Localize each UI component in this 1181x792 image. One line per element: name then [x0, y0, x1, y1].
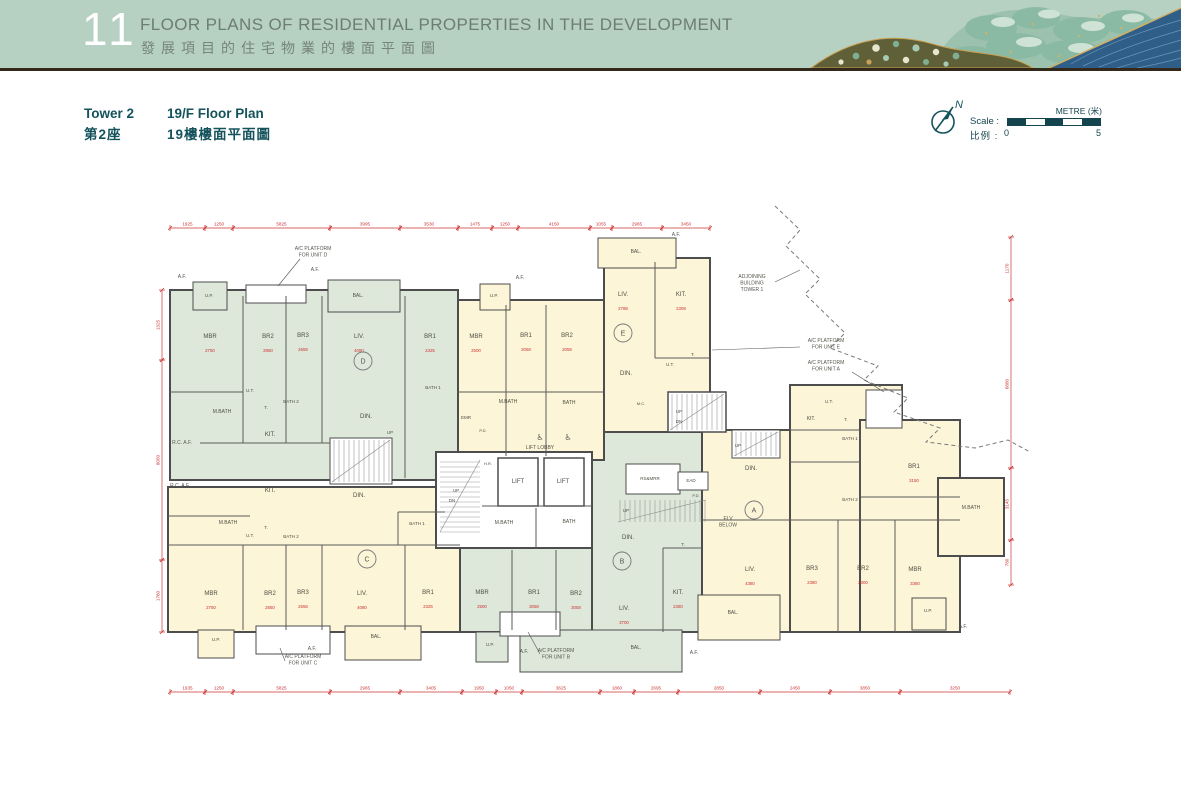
- room-label: BATH 2: [283, 399, 299, 404]
- room-label: MBR: [469, 334, 483, 340]
- room-label: BATH 2: [283, 534, 299, 539]
- annotation-label: ♿: [536, 433, 543, 442]
- annotation-label: A.F.: [672, 232, 681, 238]
- room-label: BATH 2: [842, 497, 858, 502]
- plan-zone: [246, 285, 306, 303]
- dimension-label: 1925: [182, 222, 193, 227]
- room-dimension: 3700: [619, 620, 629, 625]
- annotation-label: A/C PLATFORMFOR UNIT A: [808, 360, 845, 373]
- dimension-label: 3850: [860, 686, 871, 691]
- dimension-label: 1170: [1005, 263, 1010, 273]
- room-label: KIT.: [265, 488, 276, 494]
- dimension-label: 6880: [1005, 378, 1010, 389]
- annotation-label: A.F.: [308, 646, 317, 652]
- dimension-label: 1935: [182, 686, 193, 691]
- annotation-leader: [278, 259, 300, 286]
- dimension-label: 1050: [504, 686, 515, 691]
- room-label: MBR: [203, 334, 217, 340]
- room-label: BR1: [520, 333, 532, 339]
- room-label: T.: [681, 542, 685, 547]
- annotation-leader: [775, 270, 800, 282]
- dimension-label: 5825: [276, 222, 287, 227]
- annotation-label: ADJOININGBUILDINGTOWER 1: [738, 274, 765, 293]
- dimension-label: 2450: [790, 686, 801, 691]
- room-dimension: 2850: [265, 605, 275, 610]
- plan-zone: [938, 478, 1004, 556]
- annotation-label: A.F.: [311, 267, 320, 273]
- room-label: DIN.: [620, 371, 632, 377]
- room-dimension: 2750: [206, 605, 216, 610]
- room-label: BAL.: [371, 634, 382, 640]
- room-label: U.P.: [212, 637, 220, 642]
- unit-letter: D: [360, 359, 365, 366]
- room-label: T.: [844, 417, 848, 422]
- annotation-label: ♿: [564, 433, 571, 442]
- dimension-label: 3995: [360, 222, 371, 227]
- room-dimension: 2380: [673, 604, 683, 609]
- room-label: LIV.: [357, 591, 367, 597]
- room-label: BAL.: [728, 610, 739, 616]
- room-label: BR3: [297, 590, 309, 596]
- annotation-leader: [712, 347, 800, 350]
- room-label: BR2: [262, 334, 274, 340]
- room-dimension: 2058: [521, 347, 531, 352]
- room-label: M.BATH: [499, 399, 518, 405]
- room-label: BATH: [563, 400, 576, 406]
- dimension-label: 1250: [214, 686, 225, 691]
- room-label: KIT.: [265, 432, 276, 438]
- unit-letter: B: [620, 559, 625, 566]
- room-label: M.C.: [637, 401, 645, 406]
- dimension-label: 1055: [596, 222, 607, 227]
- room-dimension: 2380: [807, 580, 817, 585]
- dimension-label: 2695: [651, 686, 662, 691]
- room-dimension: 2750: [205, 348, 215, 353]
- annotation-label: A.F.: [516, 275, 525, 281]
- room-label: LIFT: [512, 479, 525, 485]
- dimension-label: 8050: [156, 454, 161, 465]
- room-label: T.: [264, 405, 268, 410]
- room-label: UP: [453, 488, 459, 493]
- room-dimension: 2500: [477, 604, 487, 609]
- room-label: LIV.: [619, 606, 629, 612]
- room-dimension: 2300: [858, 580, 868, 585]
- room-label: T.: [264, 525, 268, 530]
- dimension-label: 1475: [470, 222, 481, 227]
- annotation-label: R.C. A.F.: [170, 483, 190, 489]
- dimension-label: 4150: [549, 222, 560, 227]
- annotation-label: R.C. A.F.: [172, 440, 192, 446]
- plan-zone: [345, 626, 421, 660]
- plan-zone: [458, 300, 604, 460]
- room-dimension: 2325: [423, 604, 433, 609]
- dimension-label: 1760: [156, 590, 161, 601]
- room-label: LIV.: [745, 567, 755, 573]
- room-dimension: 4380: [745, 581, 755, 586]
- room-label: UP: [735, 443, 741, 448]
- room-label: DIN.: [622, 535, 634, 541]
- room-label: MBR: [475, 590, 489, 596]
- annotation-label: A.F.: [520, 649, 529, 655]
- room-label: P.D.: [692, 493, 699, 498]
- room-dimension: 2788: [618, 306, 628, 311]
- room-label: BAL.: [631, 645, 642, 651]
- room-label: LIV.: [354, 334, 364, 340]
- unit-letter: C: [364, 557, 369, 564]
- room-label: M.BATH: [219, 520, 238, 526]
- room-label: BR2: [264, 591, 276, 597]
- plan-zone: [500, 612, 560, 636]
- room-label: UP: [387, 430, 393, 435]
- room-label: BAL.: [631, 249, 642, 255]
- room-label: U.T.: [246, 533, 254, 538]
- room-label: BATH: [563, 519, 576, 525]
- floor-plan-drawing: 1925125058253995353014751250415010552965…: [0, 0, 1181, 792]
- plan-zone: [170, 290, 458, 480]
- room-dimension: 2500: [471, 348, 481, 353]
- room-label: RS&MRR: [640, 476, 660, 481]
- room-dimension: 3360: [910, 581, 920, 586]
- room-label: U.P.: [490, 293, 498, 298]
- unit-letter: A: [752, 508, 757, 515]
- room-label: KIT.: [676, 292, 687, 298]
- room-label: DIN.: [745, 466, 757, 472]
- room-label: H.R.: [484, 461, 492, 466]
- room-dimension: 2308: [676, 306, 686, 311]
- room-dimension: 2058: [562, 347, 572, 352]
- dimension-label: 1950: [474, 686, 485, 691]
- room-label: BR3: [297, 333, 309, 339]
- room-label: BR2: [561, 333, 573, 339]
- dimension-label: 2965: [360, 686, 371, 691]
- dimension-label: 2965: [632, 222, 643, 227]
- dimension-label: 1250: [500, 222, 511, 227]
- room-label: KIT.: [807, 416, 816, 422]
- dimension-label: 3625: [556, 686, 567, 691]
- annotation-label: A/C PLATFORMFOR UNIT C: [285, 654, 322, 667]
- dimension-label: 780: [1005, 558, 1010, 566]
- room-label: UP: [623, 508, 629, 513]
- room-label: MBR: [908, 567, 922, 573]
- room-dimension: 3058: [529, 604, 539, 609]
- room-label: EAD: [686, 478, 696, 483]
- dimension-label: 1860: [612, 686, 623, 691]
- plan-zone: [698, 595, 780, 640]
- room-dimension: 3150: [909, 478, 919, 483]
- room-dimension: 2658: [298, 604, 308, 609]
- room-label: BAL.: [353, 293, 364, 299]
- room-label: T.: [691, 352, 695, 357]
- room-label: U.T.: [825, 399, 833, 404]
- plan-zone: [168, 487, 460, 632]
- unit-letter: E: [621, 331, 626, 338]
- dimension-label: 3145: [1005, 498, 1010, 509]
- annotation-label: A.F.: [178, 274, 187, 280]
- room-label: P.D.: [479, 428, 486, 433]
- plan-zone: [592, 432, 702, 632]
- plan-zone: [256, 626, 330, 654]
- room-label: U.T.: [246, 388, 254, 393]
- dimension-label: 3405: [426, 686, 437, 691]
- plan-zone: [912, 598, 946, 630]
- annotation-label: A/C PLATFORMFOR UNIT D: [295, 246, 332, 259]
- room-dimension: 2325: [425, 348, 435, 353]
- annotation-label: A/C PLATFORMFOR UNIT E: [808, 338, 845, 351]
- room-label: M.BATH: [962, 505, 981, 511]
- room-label: MBR: [204, 591, 218, 597]
- brochure-page: 11 FLOOR PLANS OF RESIDENTIAL PROPERTIES…: [0, 0, 1181, 792]
- room-label: LIFT LOBBY: [526, 445, 555, 451]
- room-label: DN: [449, 498, 456, 503]
- room-label: BR1: [422, 590, 434, 596]
- room-dimension: 2658: [298, 347, 308, 352]
- room-label: EMR: [461, 415, 472, 420]
- room-dimension: 3058: [571, 605, 581, 610]
- dimension-label: 5825: [276, 686, 287, 691]
- room-label: U.P.: [924, 608, 932, 613]
- room-label: U.P.: [486, 642, 494, 647]
- room-dimension: 4080: [357, 605, 367, 610]
- dimension-label: 3250: [950, 686, 961, 691]
- room-label: BR3: [806, 566, 818, 572]
- room-label: M.BATH: [495, 520, 514, 526]
- room-label: BR1: [424, 334, 436, 340]
- dimension-label: 1250: [214, 222, 225, 227]
- room-label: BATH 1: [409, 521, 425, 526]
- plan-zone: [328, 280, 400, 312]
- room-label: BR2: [570, 591, 582, 597]
- room-label: U.P.: [205, 293, 213, 298]
- annotation-label: A/C PLATFORMFOR UNIT B: [538, 648, 575, 661]
- room-label: U.T.: [666, 362, 674, 367]
- plan-zone: [198, 630, 234, 658]
- annotation-label: A.F.: [690, 650, 699, 656]
- dimension-label: 1325: [156, 319, 161, 330]
- room-label: BR2: [857, 566, 869, 572]
- room-label: DIN.: [353, 493, 365, 499]
- room-dimension: 2850: [263, 348, 273, 353]
- room-label: DIN.: [360, 414, 372, 420]
- annotation-label: A.F.: [959, 624, 968, 630]
- room-label: BATH 1: [425, 385, 441, 390]
- room-label: KIT.: [673, 590, 684, 596]
- room-label: LIFT: [557, 479, 570, 485]
- room-label: M.BATH: [213, 409, 232, 415]
- dimension-label: 3530: [424, 222, 435, 227]
- dimension-label: 2850: [714, 686, 725, 691]
- dimension-label: 3450: [681, 222, 692, 227]
- room-label: UP: [676, 409, 682, 414]
- room-label: LIV.: [618, 292, 628, 298]
- room-label: BR1: [908, 464, 920, 470]
- room-label: DN: [676, 419, 683, 424]
- room-label: BATH 1: [842, 436, 858, 441]
- room-label: BR1: [528, 590, 540, 596]
